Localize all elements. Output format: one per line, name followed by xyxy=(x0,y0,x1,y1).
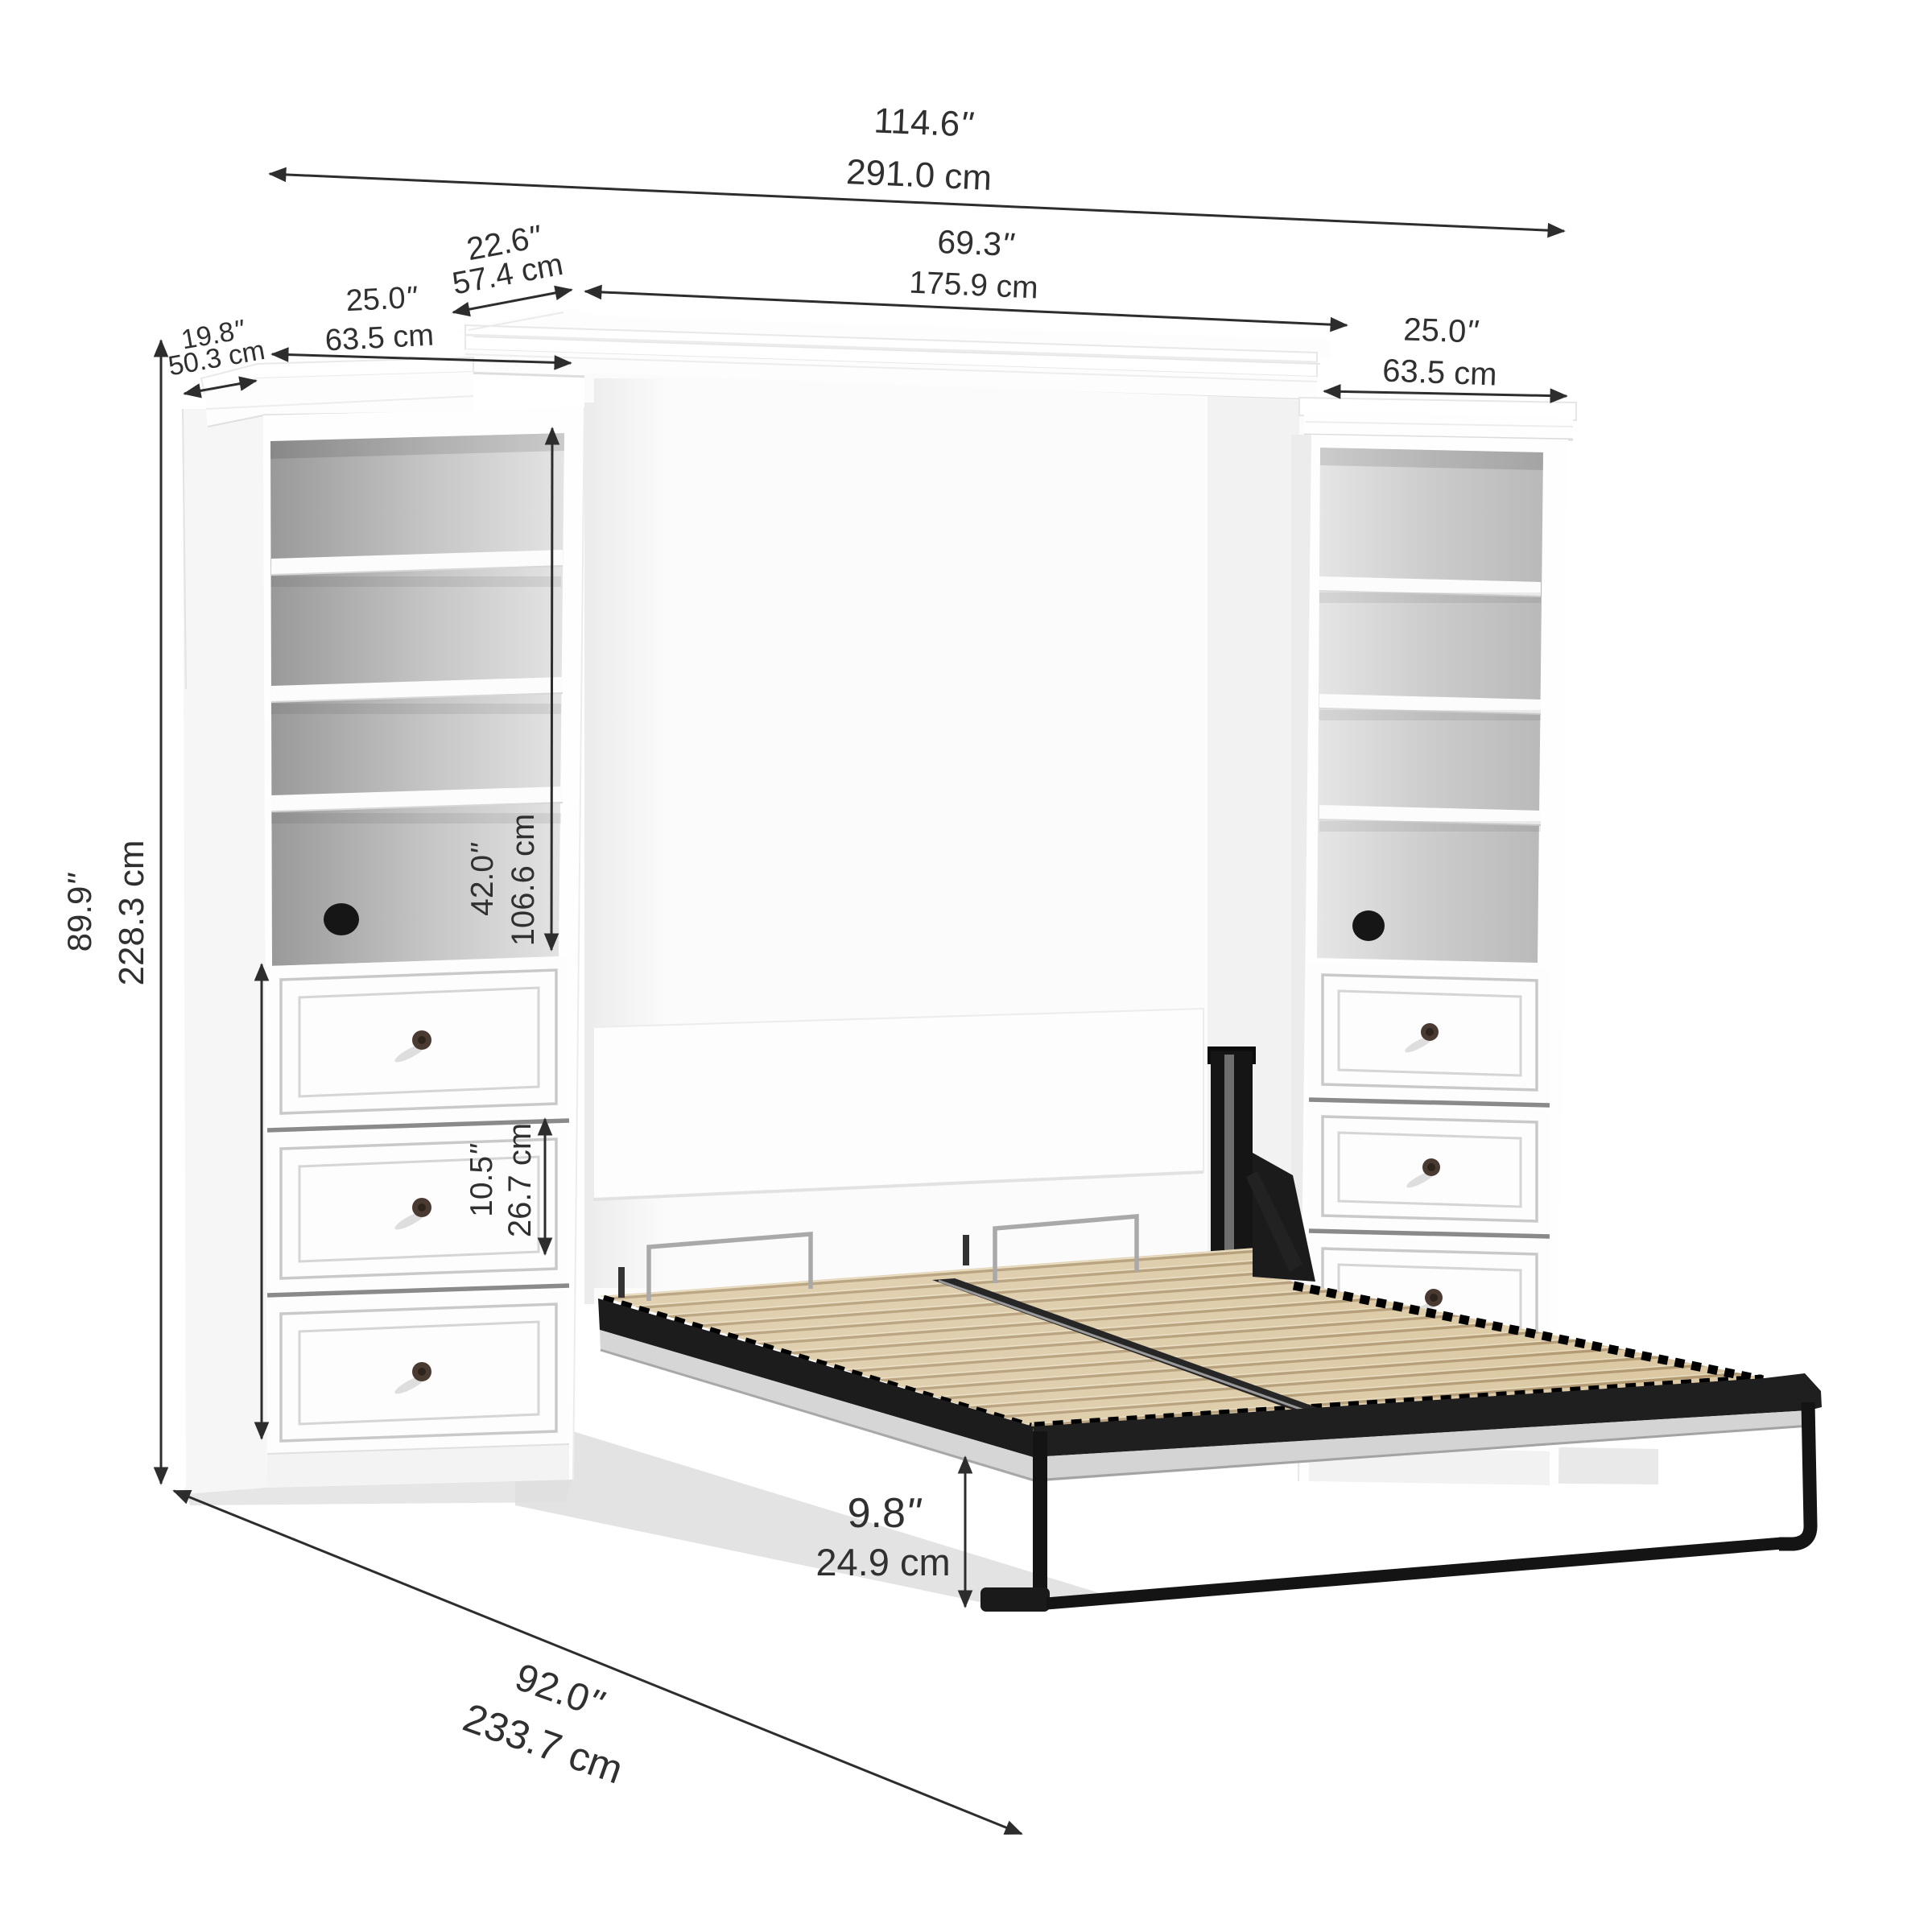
svg-text:106.6 cm: 106.6 cm xyxy=(506,814,541,947)
svg-text:25.0": 25.0" xyxy=(345,281,419,319)
svg-text:114.6": 114.6" xyxy=(873,101,975,144)
svg-text:24.9 cm: 24.9 cm xyxy=(815,1541,950,1583)
svg-text:10.5": 10.5" xyxy=(464,1143,499,1217)
svg-text:63.5 cm: 63.5 cm xyxy=(1382,353,1498,393)
svg-text:26.7 cm: 26.7 cm xyxy=(502,1123,538,1237)
svg-text:228.3 cm: 228.3 cm xyxy=(112,840,151,986)
svg-text:42.0": 42.0" xyxy=(465,842,500,916)
svg-text:63.5 cm: 63.5 cm xyxy=(324,319,435,358)
svg-text:175.9 cm: 175.9 cm xyxy=(908,266,1038,306)
svg-text:89.9": 89.9" xyxy=(60,873,98,952)
svg-text:25.0": 25.0" xyxy=(1403,312,1480,349)
svg-text:291.0 cm: 291.0 cm xyxy=(845,152,993,198)
svg-text:69.3": 69.3" xyxy=(936,223,1016,263)
svg-text:9.8": 9.8" xyxy=(848,1490,923,1537)
